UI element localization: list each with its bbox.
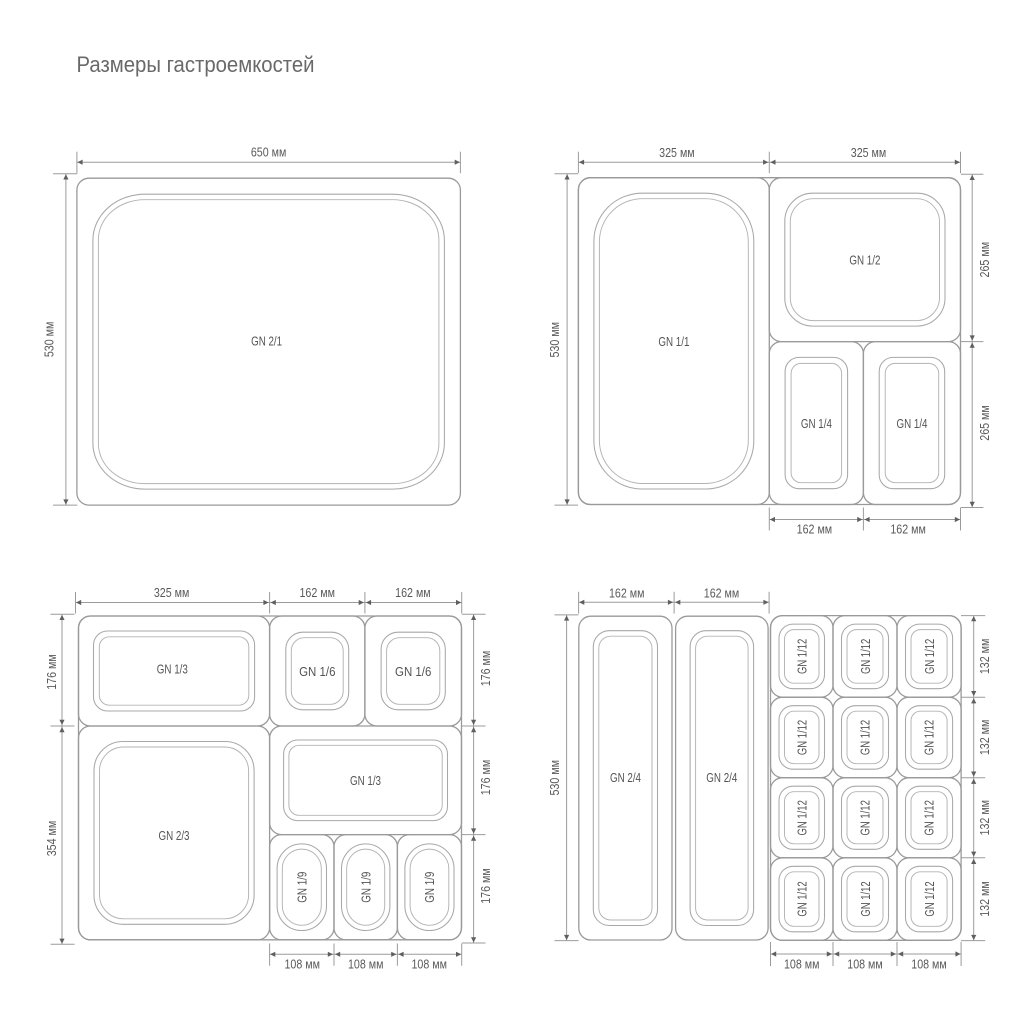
svg-text:162 мм: 162 мм [299, 585, 335, 600]
svg-text:GN 1/12: GN 1/12 [922, 800, 937, 835]
svg-text:GN 1/12: GN 1/12 [795, 720, 810, 755]
svg-text:265 мм: 265 мм [977, 242, 992, 278]
svg-text:GN 2/3: GN 2/3 [159, 828, 190, 843]
svg-text:162 мм: 162 мм [609, 585, 645, 600]
svg-text:530 мм: 530 мм [547, 760, 562, 796]
svg-text:325 мм: 325 мм [659, 145, 695, 160]
svg-text:354 мм: 354 мм [44, 821, 59, 857]
svg-text:GN 1/2: GN 1/2 [849, 253, 880, 268]
svg-text:530 мм: 530 мм [42, 322, 57, 358]
svg-text:GN 1/12: GN 1/12 [858, 881, 873, 916]
svg-text:108 мм: 108 мм [284, 957, 320, 972]
svg-text:650 мм: 650 мм [251, 145, 287, 160]
svg-text:132 мм: 132 мм [977, 881, 992, 917]
svg-text:GN 1/12: GN 1/12 [922, 720, 937, 755]
svg-text:108 мм: 108 мм [411, 957, 447, 972]
svg-text:GN 2/1: GN 2/1 [251, 334, 282, 349]
svg-text:176 мм: 176 мм [478, 868, 493, 904]
svg-text:GN 1/6: GN 1/6 [395, 664, 431, 679]
svg-text:162 мм: 162 мм [395, 585, 431, 600]
svg-text:GN 1/9: GN 1/9 [359, 872, 374, 903]
svg-text:GN 1/12: GN 1/12 [795, 639, 810, 674]
svg-text:325 мм: 325 мм [154, 585, 190, 600]
svg-text:132 мм: 132 мм [977, 720, 992, 756]
svg-text:108 мм: 108 мм [784, 957, 820, 972]
svg-text:GN 2/4: GN 2/4 [706, 770, 737, 785]
svg-text:GN 1/12: GN 1/12 [922, 639, 937, 674]
svg-text:265 мм: 265 мм [977, 405, 992, 441]
svg-text:Размеры гастроемкостей: Размеры гастроемкостей [77, 52, 315, 77]
svg-text:GN 1/6: GN 1/6 [299, 664, 335, 679]
svg-text:132 мм: 132 мм [977, 800, 992, 836]
svg-text:GN 1/4: GN 1/4 [801, 416, 832, 431]
svg-text:162 мм: 162 мм [890, 522, 926, 537]
svg-text:GN 1/12: GN 1/12 [858, 639, 873, 674]
svg-text:530 мм: 530 мм [547, 322, 562, 358]
svg-text:108 мм: 108 мм [847, 957, 883, 972]
svg-text:GN 2/4: GN 2/4 [610, 770, 641, 785]
svg-text:GN 1/9: GN 1/9 [295, 872, 310, 903]
svg-text:GN 1/12: GN 1/12 [922, 881, 937, 916]
svg-text:GN 1/3: GN 1/3 [157, 662, 188, 677]
svg-text:176 мм: 176 мм [44, 654, 59, 690]
svg-text:108 мм: 108 мм [911, 957, 947, 972]
svg-text:176 мм: 176 мм [478, 651, 493, 687]
svg-text:108 мм: 108 мм [348, 957, 384, 972]
svg-text:162 мм: 162 мм [797, 522, 833, 537]
svg-text:176 мм: 176 мм [478, 760, 493, 796]
svg-text:132 мм: 132 мм [977, 639, 992, 675]
svg-text:GN 1/12: GN 1/12 [795, 881, 810, 916]
svg-text:GN 1/1: GN 1/1 [658, 334, 689, 349]
svg-text:GN 1/12: GN 1/12 [795, 800, 810, 835]
svg-text:GN 1/9: GN 1/9 [422, 872, 437, 903]
svg-text:325 мм: 325 мм [851, 145, 887, 160]
svg-text:GN 1/4: GN 1/4 [897, 416, 928, 431]
svg-text:GN 1/12: GN 1/12 [858, 720, 873, 755]
svg-text:GN 1/12: GN 1/12 [858, 800, 873, 835]
svg-text:162 мм: 162 мм [704, 585, 740, 600]
svg-text:GN 1/3: GN 1/3 [350, 773, 381, 788]
